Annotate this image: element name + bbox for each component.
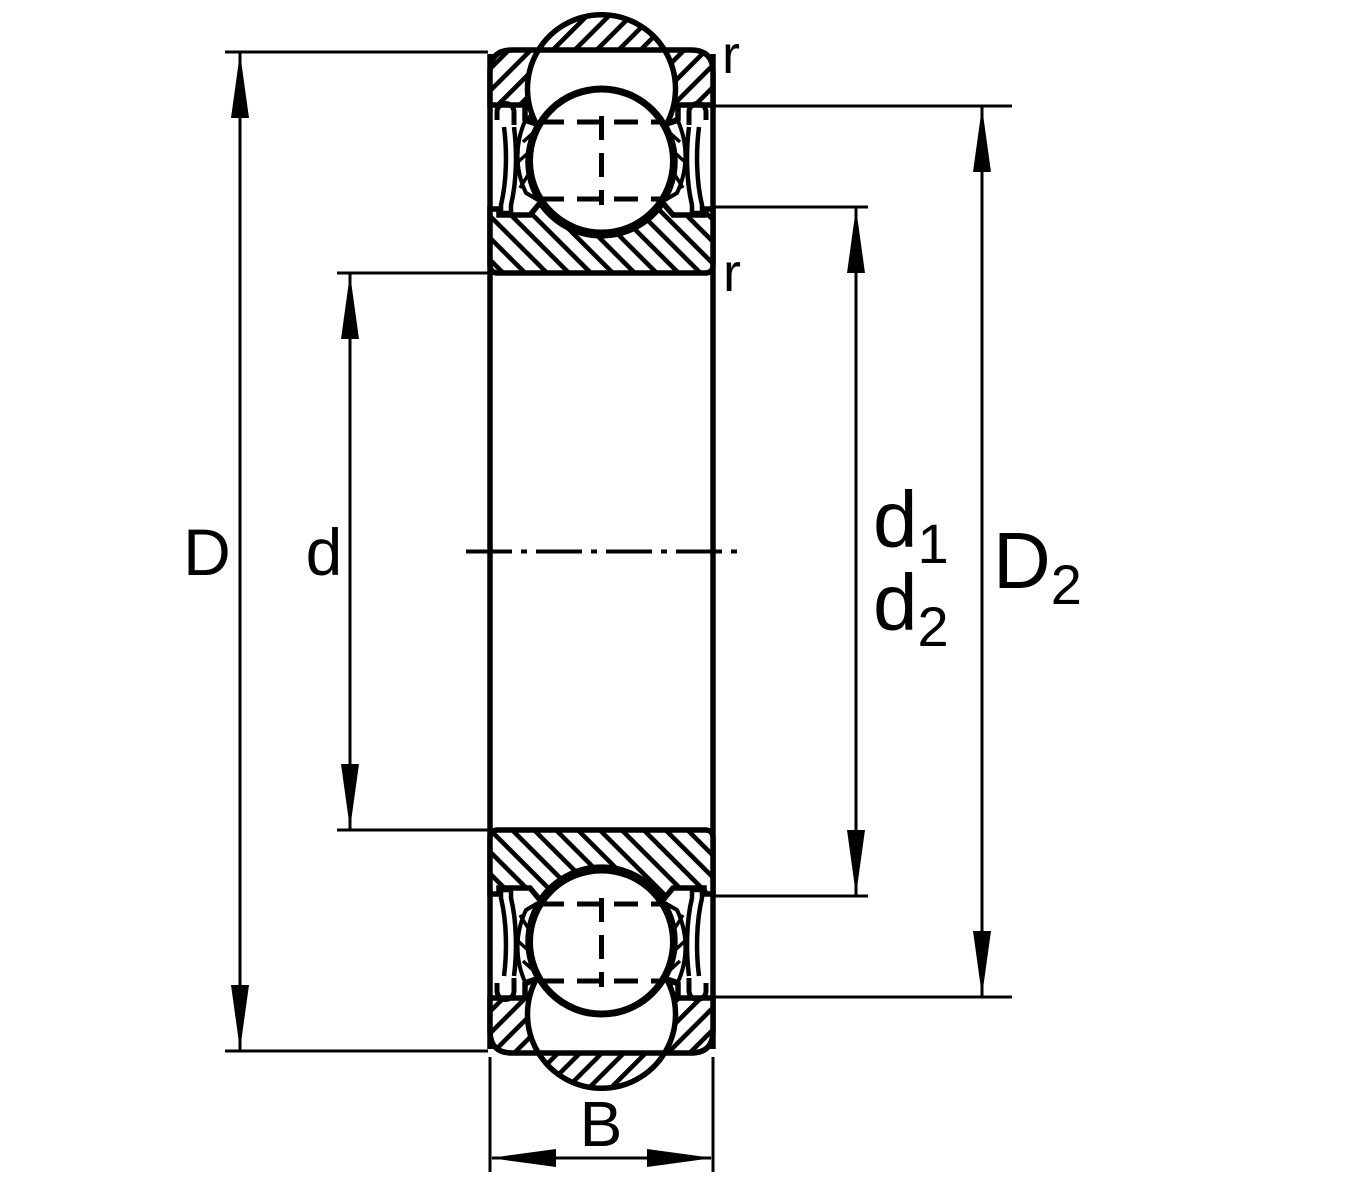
label-D2-subscript: 2 [1051,553,1082,616]
arrow-B-left [490,1149,556,1167]
label-d1-subscript: 1 [918,512,949,575]
shield-top-left [497,104,516,214]
arrow-B-right [647,1149,713,1167]
label-chamfer-r-inner: r [723,243,741,303]
arrow-d1d2-up [847,208,865,273]
label-outer-diameter-D: D [183,515,231,589]
shield-strip-edge [511,890,516,976]
shield-strip-edge [697,890,702,976]
arrow-d1d2-down [847,830,865,895]
shield-strip-edge [501,890,506,976]
arrow-D-down [231,985,249,1050]
shield-strip-edge [687,127,692,213]
arrow-d-up [341,274,359,339]
shield-strip-edge [501,127,506,213]
label-d2-subscript: 2 [918,595,949,658]
shield-strip-edge [511,127,516,213]
label-D2-base: D [993,516,1051,605]
label-d1-base: d [873,475,918,564]
label-width-B: B [580,1088,623,1160]
shield-strip-edge [687,890,692,976]
shield-bottom-left [497,890,516,1000]
shield-strip-edge [697,127,702,213]
drawing-canvas: D d B d1 d2 D2 r r [0,0,1350,1200]
shield-bottom-right [687,890,706,1000]
label-d2-base: d [873,558,918,647]
arrow-d-down [341,764,359,829]
arrow-D-up [231,53,249,118]
label-chamfer-r-top: r [722,25,740,85]
shield-top-right [687,104,706,214]
label-D2: D2 [993,516,1082,616]
bearing-dimension-drawing: D d B d1 d2 D2 r r [0,0,1350,1200]
label-bore-diameter-d: d [306,515,343,589]
arrow-D2-down [973,931,991,996]
arrow-D2-up [973,107,991,172]
